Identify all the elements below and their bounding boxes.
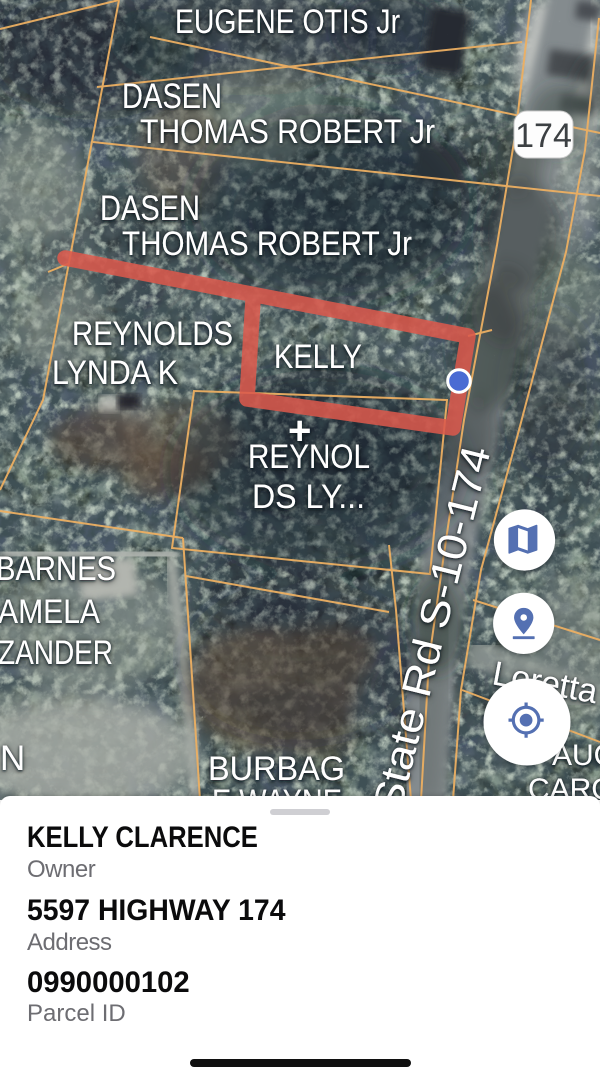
- svg-text:EUGENE OTIS Jr: EUGENE OTIS Jr: [175, 3, 400, 41]
- svg-text:174: 174: [515, 117, 572, 155]
- svg-text:REYNOLDS: REYNOLDS: [72, 315, 233, 353]
- svg-text:KELLY: KELLY: [274, 338, 362, 376]
- svg-text:LYNDA K: LYNDA K: [52, 354, 178, 392]
- svg-text:REYNOL: REYNOL: [248, 438, 370, 476]
- svg-text:THOMAS ROBERT Jr: THOMAS ROBERT Jr: [140, 113, 435, 151]
- svg-text:DASEN: DASEN: [122, 77, 222, 116]
- svg-text:ZANDER: ZANDER: [0, 634, 113, 672]
- svg-text:AMELA: AMELA: [0, 593, 100, 631]
- svg-text:THOMAS ROBERT Jr: THOMAS ROBERT Jr: [122, 225, 412, 263]
- svg-text:BARNES: BARNES: [0, 550, 116, 588]
- svg-text:DASEN: DASEN: [100, 189, 200, 228]
- svg-text:DS LY...: DS LY...: [252, 478, 365, 516]
- svg-text:N: N: [0, 739, 25, 778]
